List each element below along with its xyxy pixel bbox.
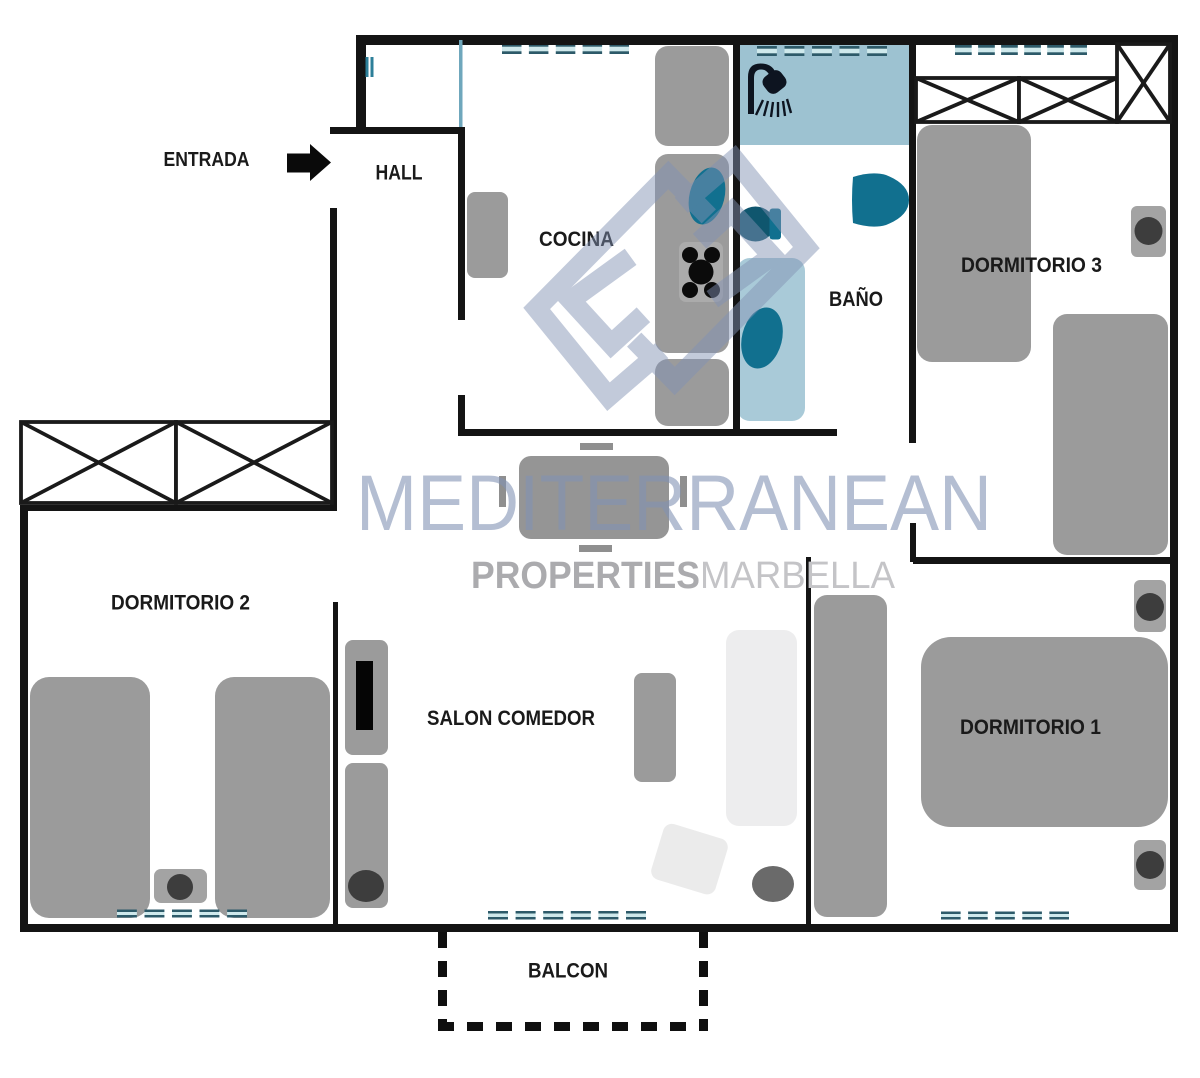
svg-text:MARBELLA: MARBELLA xyxy=(700,555,896,597)
svg-text:DORMITORIO 3: DORMITORIO 3 xyxy=(961,254,1102,277)
svg-text:PROPERTIES: PROPERTIES xyxy=(471,555,700,597)
svg-text:ENTRADA: ENTRADA xyxy=(164,149,250,171)
svg-text:BAÑO: BAÑO xyxy=(829,288,883,311)
svg-text:HALL: HALL xyxy=(376,162,423,185)
svg-text:SALON COMEDOR: SALON COMEDOR xyxy=(427,707,595,730)
svg-text:BALCON: BALCON xyxy=(528,960,608,983)
svg-text:DORMITORIO 2: DORMITORIO 2 xyxy=(111,592,250,615)
svg-text:DORMITORIO 1: DORMITORIO 1 xyxy=(960,716,1101,739)
svg-text:MEDITERRANEAN: MEDITERRANEAN xyxy=(356,458,992,547)
